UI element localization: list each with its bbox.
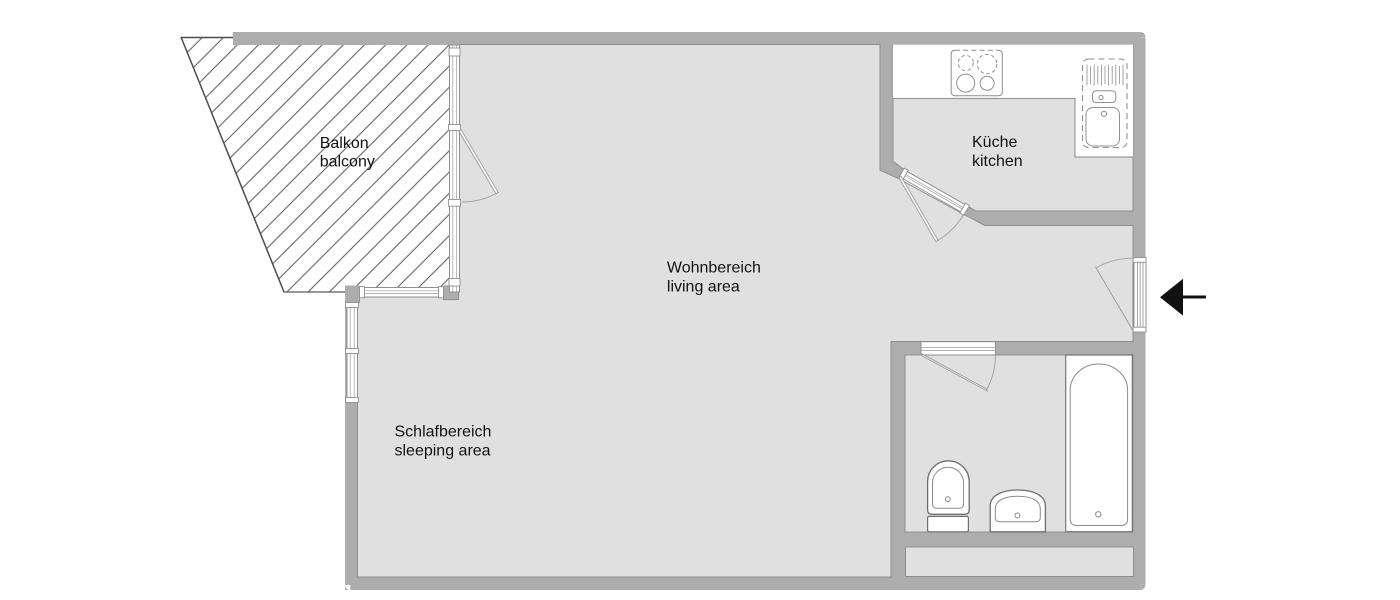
svg-text:living area: living area <box>667 278 740 295</box>
svg-text:Küche: Küche <box>972 134 1017 151</box>
svg-text:balcony: balcony <box>320 154 375 171</box>
svg-text:Schlafbereich: Schlafbereich <box>395 424 492 441</box>
svg-text:sleeping area: sleeping area <box>395 443 491 460</box>
svg-text:kitchen: kitchen <box>972 153 1023 170</box>
svg-text:Balkon: Balkon <box>320 135 369 152</box>
svg-text:Wohnbereich: Wohnbereich <box>667 260 761 277</box>
